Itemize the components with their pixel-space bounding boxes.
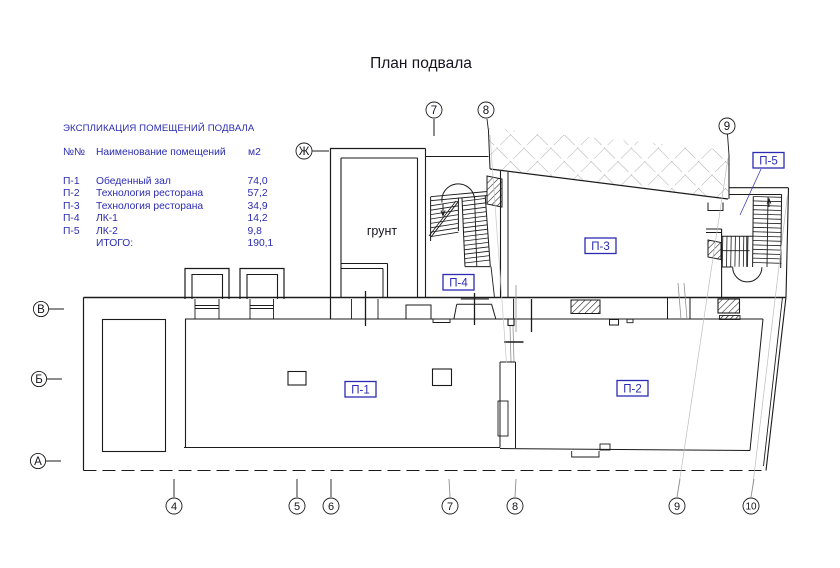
svg-text:В: В: [37, 304, 45, 316]
svg-text:Технология ресторана: Технология ресторана: [96, 201, 203, 212]
svg-text:Б: Б: [35, 374, 43, 386]
svg-text:9: 9: [724, 121, 730, 133]
svg-text:34,9: 34,9: [248, 201, 268, 212]
svg-text:№№: №№: [63, 147, 85, 158]
svg-text:7: 7: [447, 501, 453, 513]
svg-text:6: 6: [328, 501, 334, 513]
svg-text:57,2: 57,2: [248, 188, 268, 199]
svg-text:190,1: 190,1: [248, 238, 274, 249]
svg-text:10: 10: [745, 502, 757, 513]
svg-text:П-5: П-5: [759, 156, 778, 168]
svg-text:грунт: грунт: [367, 224, 398, 238]
svg-text:ИТОГО:: ИТОГО:: [96, 238, 133, 249]
svg-text:П-2: П-2: [623, 384, 642, 396]
svg-text:9: 9: [674, 501, 680, 513]
svg-text:П-5: П-5: [63, 226, 80, 237]
svg-text:4: 4: [171, 501, 177, 513]
svg-text:П-4: П-4: [449, 278, 468, 290]
svg-text:9,8: 9,8: [248, 226, 263, 237]
svg-text:П-3: П-3: [591, 241, 610, 253]
svg-text:П-3: П-3: [63, 201, 80, 212]
svg-text:м2: м2: [248, 147, 261, 158]
svg-text:П-1: П-1: [63, 176, 80, 187]
svg-text:7: 7: [431, 105, 437, 117]
svg-text:П-2: П-2: [63, 188, 80, 199]
svg-text:А: А: [34, 456, 42, 468]
svg-text:П-1: П-1: [351, 385, 370, 397]
svg-text:План подвала: План подвала: [370, 55, 472, 72]
svg-text:ЭКСПЛИКАЦИЯ ПОМЕЩЕНИЙ ПОДВАЛА: ЭКСПЛИКАЦИЯ ПОМЕЩЕНИЙ ПОДВАЛА: [63, 122, 255, 134]
svg-text:8: 8: [483, 105, 489, 117]
svg-text:ЛК-2: ЛК-2: [96, 226, 118, 237]
svg-text:Технология ресторана: Технология ресторана: [96, 188, 203, 199]
svg-text:8: 8: [512, 501, 518, 513]
svg-text:5: 5: [294, 501, 300, 513]
svg-text:Обеденный зал: Обеденный зал: [96, 175, 171, 187]
svg-text:14,2: 14,2: [248, 213, 268, 224]
svg-text:74,0: 74,0: [248, 176, 268, 187]
svg-text:ЛК-1: ЛК-1: [96, 213, 118, 224]
svg-text:П-4: П-4: [63, 213, 80, 224]
svg-text:Ж: Ж: [299, 146, 310, 158]
svg-text:Наименование помещений: Наименование помещений: [96, 147, 226, 158]
